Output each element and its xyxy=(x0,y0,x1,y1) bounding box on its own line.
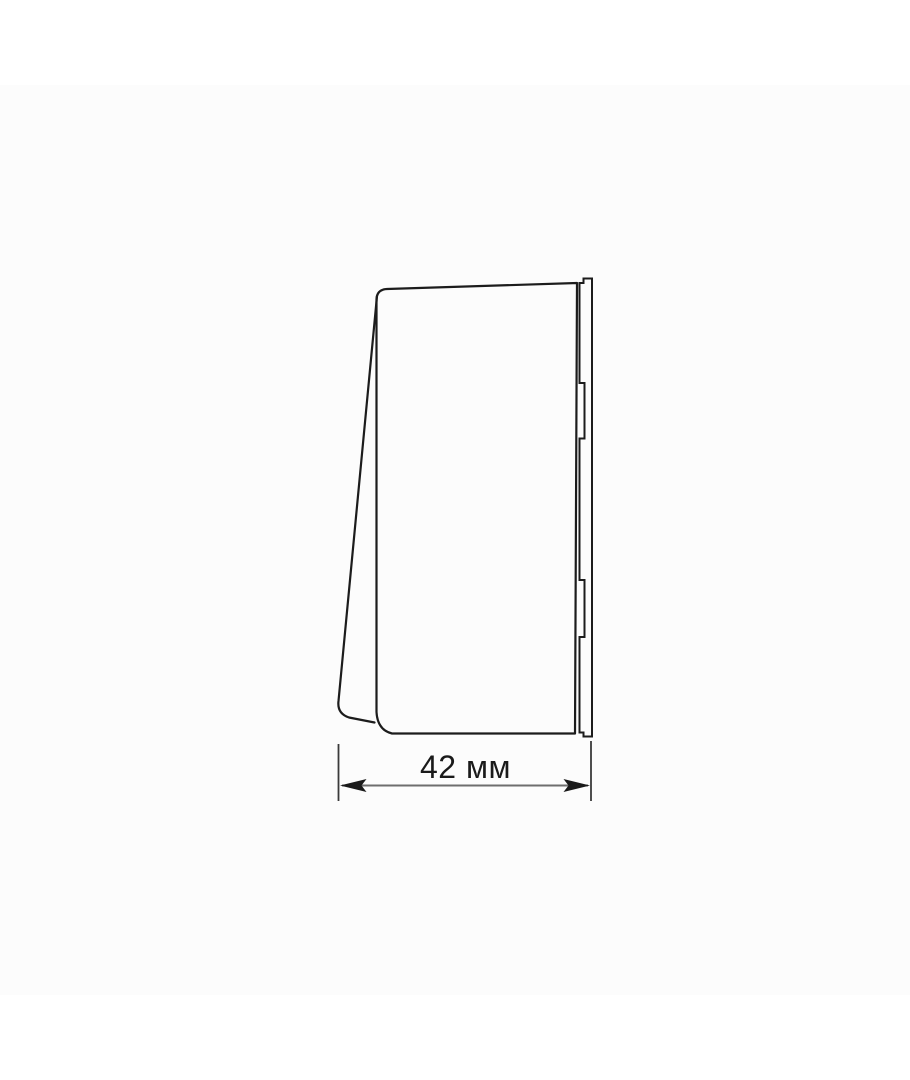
switch-mounting-plate-outline xyxy=(580,279,593,737)
switch-rocker-outline xyxy=(338,296,377,723)
switch-side-view-drawing xyxy=(0,0,910,1080)
switch-body-outline xyxy=(377,283,578,734)
dimension-label: 42 мм xyxy=(340,751,591,783)
product-image-page: 42 мм xyxy=(0,0,910,1080)
